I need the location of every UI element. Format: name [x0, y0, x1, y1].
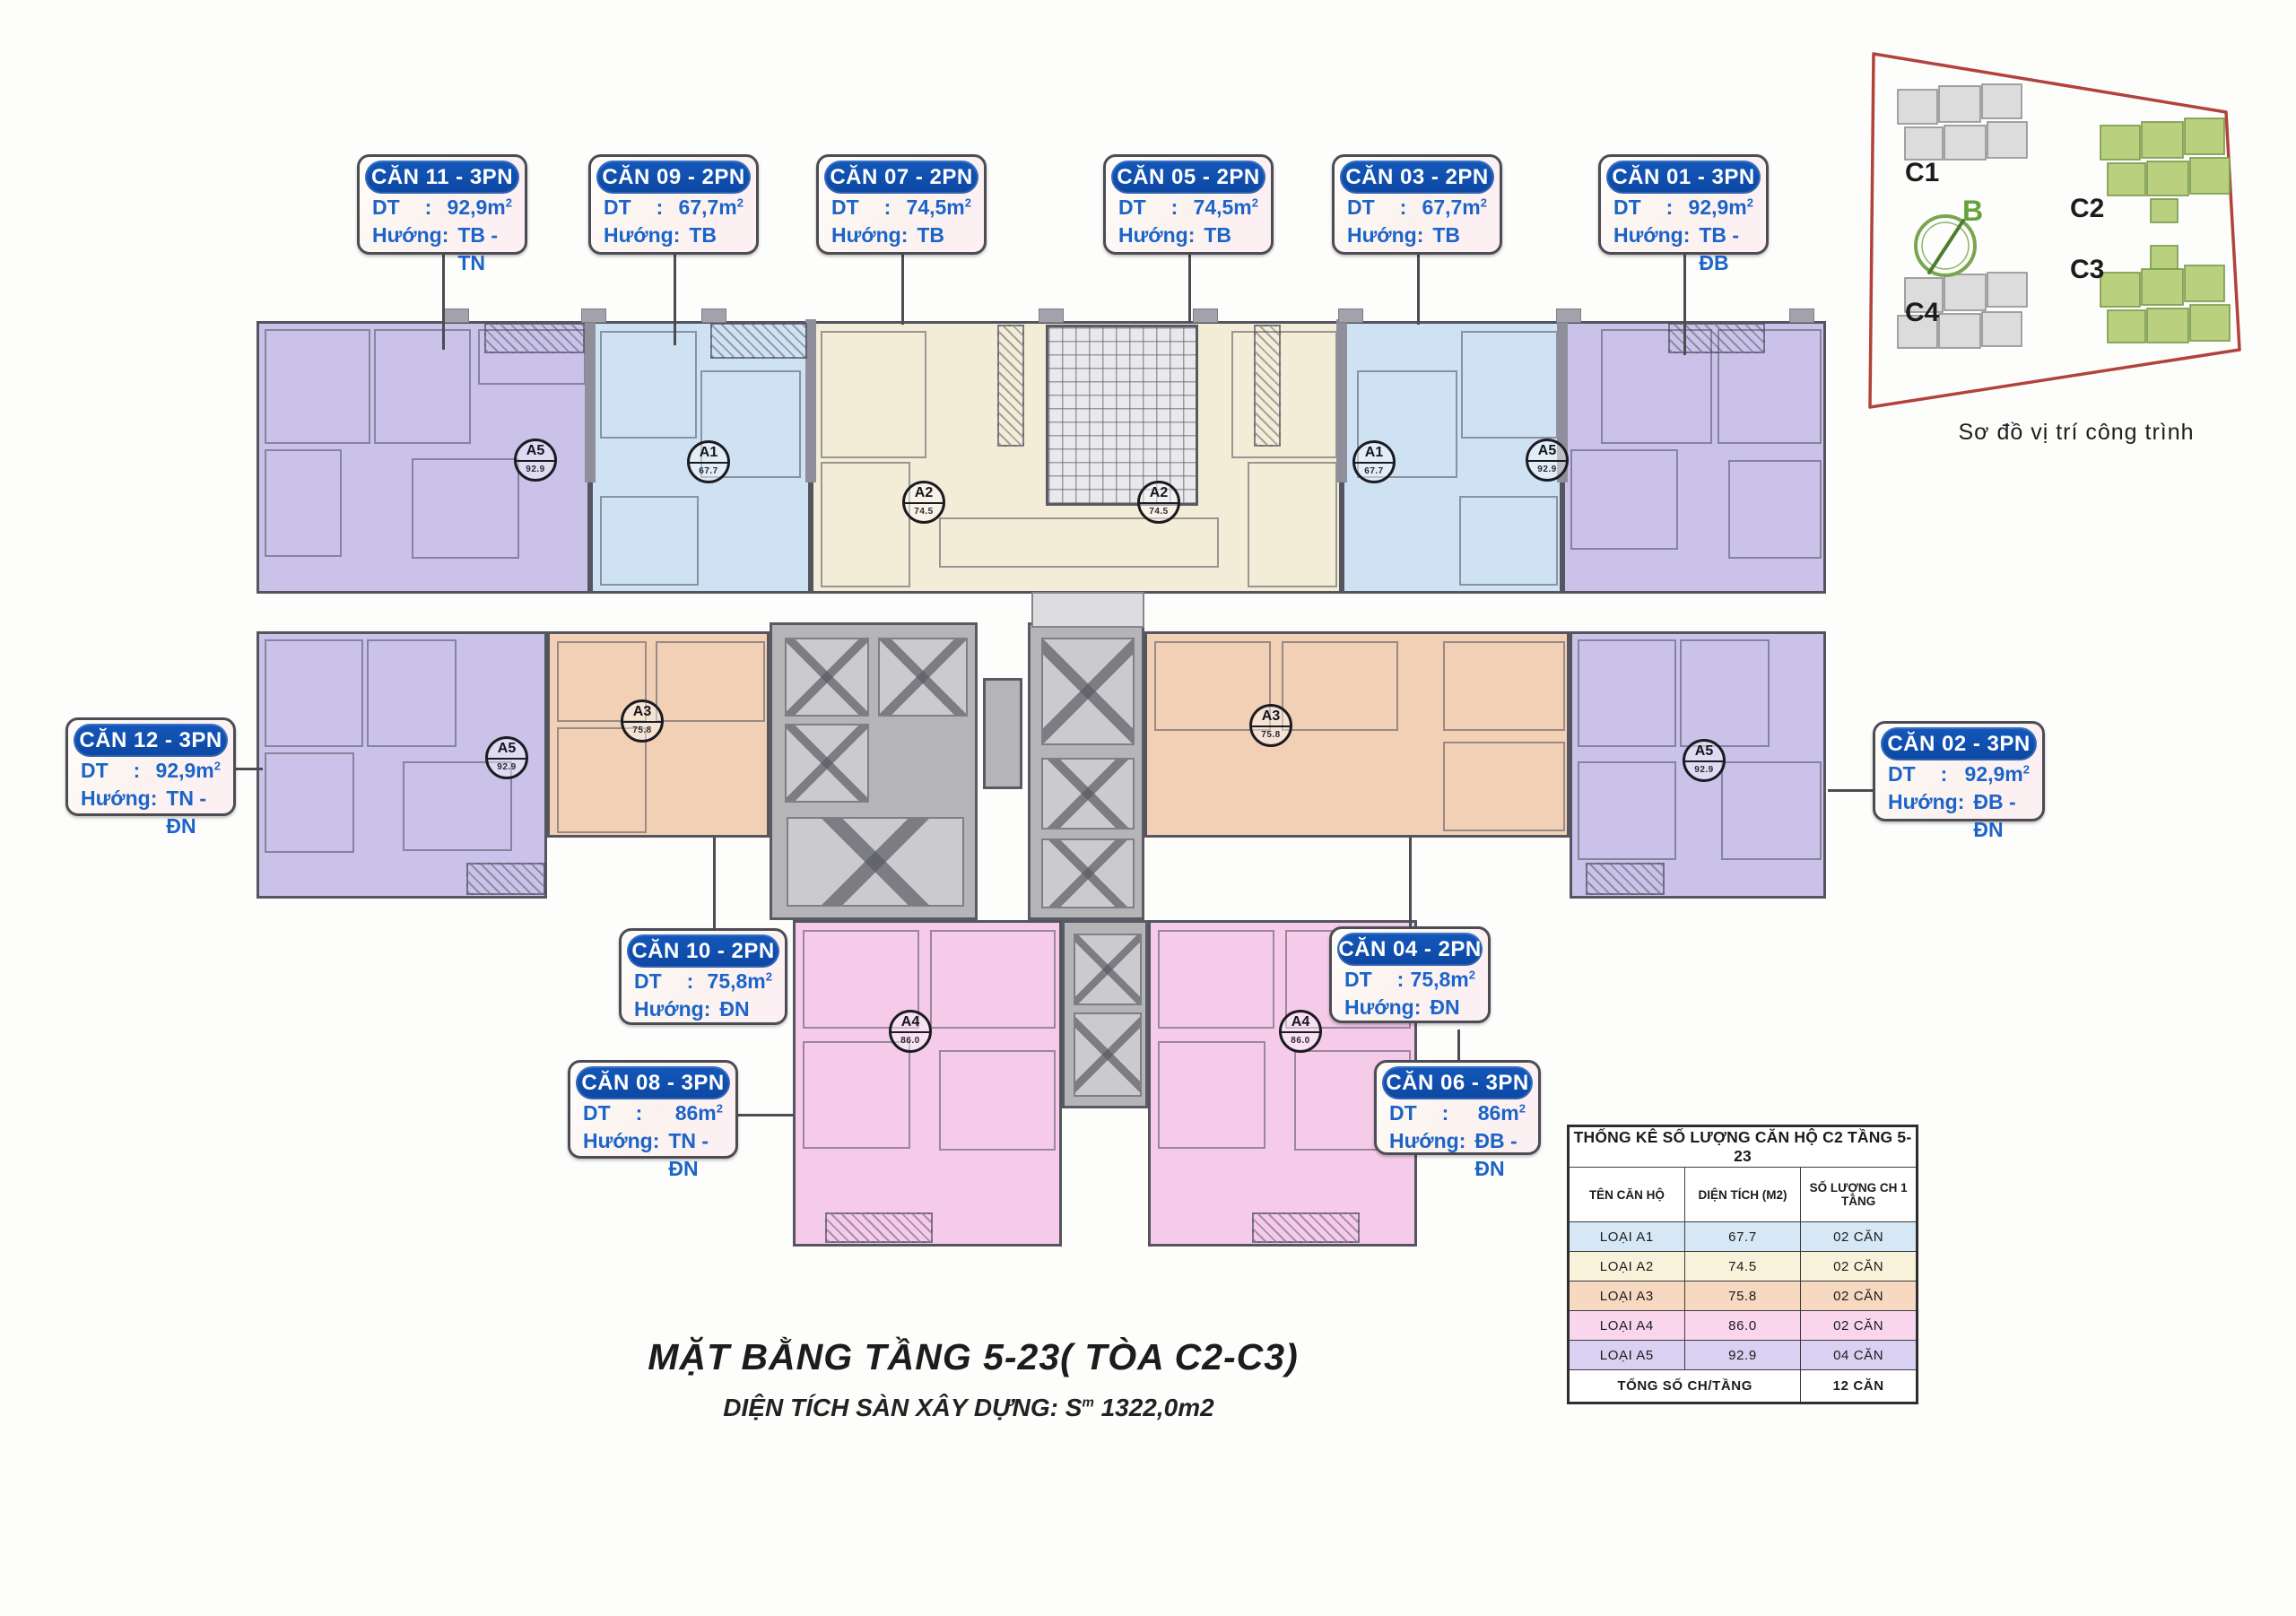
stats-header-name: TÊN CĂN HỘ — [1569, 1168, 1685, 1222]
parapet-tab — [1556, 308, 1581, 323]
unit-type-badge: A274.5 — [1137, 481, 1180, 524]
area-colon: : — [1442, 1099, 1449, 1127]
area-value: 86m2 — [675, 1099, 723, 1127]
unit-label-title: CĂN 07 - 2PN — [824, 161, 978, 194]
core-elevator-right — [1028, 622, 1144, 920]
unit-type-area: 75.8 — [1252, 727, 1290, 743]
stats-area: 75.8 — [1684, 1282, 1801, 1311]
site-building-wing — [1944, 274, 1986, 310]
unit-label-direction-row: Hướng:ĐB - ĐN — [1382, 1127, 1533, 1183]
unit-label-area-row: DT:86m2 — [1382, 1099, 1533, 1127]
stats-total-label: TỔNG SỐ CH/TẦNG — [1569, 1370, 1801, 1403]
area-label: DT — [372, 194, 400, 222]
area-colon: : — [1171, 194, 1178, 222]
area-label: DT — [1389, 1099, 1417, 1127]
room-outline — [1721, 761, 1822, 860]
site-location-diagram: C1C2C3C4B — [1858, 38, 2271, 468]
direction-label: Hướng: — [1613, 222, 1690, 249]
unit-type-badge: A167.7 — [1352, 440, 1396, 483]
stats-title: THỐNG KÊ SỐ LƯỢNG CĂN HỘ C2 TẦNG 5-23 — [1569, 1126, 1918, 1168]
balcony-hatch — [825, 1212, 933, 1243]
area-colon: : — [1400, 194, 1407, 222]
room-outline — [1231, 331, 1337, 458]
stats-type: LOẠI A2 — [1569, 1252, 1685, 1282]
unit-type-badge: A592.9 — [1683, 739, 1726, 782]
area-value: 74,5m2 — [907, 194, 971, 222]
direction-label: Hướng: — [634, 995, 710, 1023]
balcony-hatch — [466, 863, 545, 895]
site-building-label: C4 — [1905, 298, 1940, 327]
room-outline — [1728, 460, 1822, 559]
label-connector — [236, 768, 263, 770]
area-colon: : — [1666, 194, 1674, 222]
area-value: 75,8m2 — [1411, 966, 1475, 994]
area-label: DT — [1344, 966, 1372, 994]
site-building-C4: C4 — [1898, 273, 2027, 348]
room-outline — [1443, 641, 1565, 731]
direction-value: TB - ĐB — [1699, 222, 1753, 277]
unit-label-can-03: CĂN 03 - 2PNDT:67,7m2Hướng:TB — [1332, 154, 1502, 255]
direction-value: TN - ĐN — [668, 1127, 723, 1183]
parapet-tab — [1193, 308, 1218, 323]
direction-value: TB — [1432, 222, 1460, 249]
label-connector — [674, 255, 676, 345]
site-building-wing — [1987, 122, 2027, 158]
site-building-wing — [2151, 246, 2178, 269]
stats-type: LOẠI A1 — [1569, 1222, 1685, 1252]
room-outline — [600, 496, 699, 586]
area-label: DT — [604, 194, 631, 222]
site-building-C2: C2 — [2070, 118, 2230, 223]
room-outline — [939, 1050, 1056, 1151]
unit-label-title: CĂN 06 - 3PN — [1382, 1066, 1533, 1099]
direction-value: TB — [917, 222, 944, 249]
room-outline — [803, 1041, 910, 1149]
label-connector — [1828, 789, 1873, 792]
direction-value: ĐN — [1430, 994, 1459, 1021]
unit-type-badge: A592.9 — [514, 439, 557, 482]
site-building-label: C2 — [2070, 194, 2104, 223]
unit-label-title: CĂN 12 - 3PN — [74, 724, 228, 757]
elevator-cell — [1041, 758, 1135, 830]
direction-label: Hướng: — [831, 222, 908, 249]
stats-count: 04 CĂN — [1801, 1341, 1918, 1370]
room-outline — [265, 449, 342, 557]
site-building-wing — [2190, 158, 2230, 194]
label-connector — [713, 838, 716, 928]
unit-label-area-row: DT:67,7m2 — [596, 194, 751, 222]
unit-label-title: CĂN 10 - 2PN — [627, 934, 779, 968]
site-building-wing — [1982, 84, 2022, 118]
unit-label-can-07: CĂN 07 - 2PNDT:74,5m2Hướng:TB — [816, 154, 987, 255]
unit-type-code: A2 — [1140, 483, 1178, 504]
core-center-bottom — [1062, 920, 1148, 1108]
direction-value: TB — [1204, 222, 1231, 249]
unit-type-code: A5 — [1528, 441, 1566, 462]
unit-label-area-row: DT:92,9m2 — [1881, 760, 2037, 788]
unit-label-can-09: CĂN 09 - 2PNDT:67,7m2Hướng:TB — [588, 154, 759, 255]
parapet-tab — [444, 308, 469, 323]
stats-type: LOẠI A5 — [1569, 1341, 1685, 1370]
area-colon: : — [425, 194, 432, 222]
unit-label-direction-row: Hướng:TN - ĐN — [74, 785, 228, 840]
room-outline — [939, 517, 1219, 568]
unit-type-badge: A486.0 — [889, 1010, 932, 1053]
area-colon: : — [1397, 966, 1405, 994]
unit-label-title: CĂN 02 - 3PN — [1881, 727, 2037, 760]
unit-label-can-12: CĂN 12 - 3PNDT:92,9m2Hướng:TN - ĐN — [65, 717, 236, 816]
unit-label-title: CĂN 03 - 2PN — [1340, 161, 1494, 194]
room-outline — [1443, 742, 1565, 831]
room-outline — [265, 639, 363, 747]
area-value: 92,9m2 — [1689, 194, 1753, 222]
unit-type-code: A2 — [905, 483, 943, 504]
site-building-label: C3 — [2070, 255, 2104, 284]
subtitle-sub: m — [1082, 1395, 1093, 1411]
unit-label-area-row: DT:75,8m2 — [627, 968, 779, 995]
unit-block-unit-can08 — [793, 920, 1062, 1247]
room-outline — [821, 331, 926, 458]
wing-connector-lobby — [1031, 592, 1144, 628]
stats-area: 67.7 — [1684, 1222, 1801, 1252]
unit-type-area: 67.7 — [690, 464, 727, 479]
room-outline — [265, 329, 370, 444]
unit-label-title: CĂN 08 - 3PN — [576, 1066, 730, 1099]
parapet-tab — [1789, 308, 1814, 323]
room-outline — [1459, 496, 1558, 586]
unit-type-area: 86.0 — [1282, 1033, 1319, 1048]
direction-label: Hướng: — [1389, 1127, 1465, 1155]
unit-type-code: A4 — [891, 1012, 929, 1033]
site-building-wing — [2108, 310, 2145, 343]
area-label: DT — [81, 757, 109, 785]
site-building-wing — [2100, 273, 2140, 307]
unit-label-area-row: DT:92,9m2 — [1606, 194, 1761, 222]
unit-type-code: A5 — [488, 739, 526, 760]
area-colon: : — [657, 194, 664, 222]
unit-label-area-row: DT:92,9m2 — [74, 757, 228, 785]
area-label: DT — [634, 968, 662, 995]
floorplan-sheet: A592.9A167.7A274.5A274.5A167.7A592.9A592… — [0, 0, 2296, 1616]
unit-type-badge: A592.9 — [1526, 439, 1569, 482]
area-value: 75,8m2 — [708, 968, 772, 995]
stats-area: 74.5 — [1684, 1252, 1801, 1282]
site-building-wing — [1944, 126, 1986, 160]
area-colon: : — [636, 1099, 643, 1127]
site-building-wing — [2151, 199, 2178, 222]
unit-type-code: A1 — [690, 443, 727, 464]
elevator-cell — [1041, 838, 1135, 908]
core-elevator-left — [770, 622, 978, 920]
unit-label-can-10: CĂN 10 - 2PNDT:75,8m2Hướng:ĐN — [619, 928, 787, 1025]
unit-type-code: A3 — [623, 702, 661, 723]
site-building-wing — [2142, 269, 2183, 305]
site-building-wing — [2147, 161, 2188, 195]
stats-type: LOẠI A3 — [1569, 1282, 1685, 1311]
apartment-stats-table: THỐNG KÊ SỐ LƯỢNG CĂN HỘ C2 TẦNG 5-23TÊN… — [1567, 1125, 1918, 1404]
unit-type-code: A5 — [517, 441, 554, 462]
stats-table-grid: THỐNG KÊ SỐ LƯỢNG CĂN HỘ C2 TẦNG 5-23TÊN… — [1567, 1125, 1918, 1404]
parapet-tab — [1039, 308, 1064, 323]
area-label: DT — [583, 1099, 611, 1127]
site-building-wing — [1898, 90, 1937, 124]
unit-type-badge: A167.7 — [687, 440, 730, 483]
unit-label-direction-row: Hướng:ĐN — [627, 995, 779, 1023]
stats-count: 02 CĂN — [1801, 1282, 1918, 1311]
plan-title: MẶT BẰNG TẦNG 5-23( TÒA C2-C3) — [592, 1336, 1354, 1378]
stats-row: LOẠI A375.802 CĂN — [1569, 1282, 1918, 1311]
stats-type: LOẠI A4 — [1569, 1311, 1685, 1341]
site-building-wing — [2100, 126, 2140, 160]
site-building-wing — [2185, 265, 2224, 301]
unit-label-direction-row: Hướng:TB — [824, 222, 978, 249]
unit-label-title: CĂN 11 - 3PN — [365, 161, 519, 194]
unit-label-direction-row: Hướng:TB — [596, 222, 751, 249]
compass-north-label: B — [1962, 195, 1983, 227]
label-connector — [1409, 838, 1412, 926]
direction-value: ĐB - ĐN — [1973, 788, 2030, 844]
area-colon: : — [884, 194, 891, 222]
direction-label: Hướng: — [372, 222, 448, 249]
stats-row: LOẠI A274.502 CĂN — [1569, 1252, 1918, 1282]
stats-header-count: SỐ LƯỢNG CH 1 TẦNG — [1801, 1168, 1918, 1222]
room-outline — [1158, 1041, 1265, 1149]
core-center-top — [1046, 325, 1198, 506]
direction-label: Hướng: — [583, 1127, 659, 1155]
unit-label-area-row: DT:74,5m2 — [824, 194, 978, 222]
room-outline — [656, 641, 765, 722]
stats-total-value: 12 CĂN — [1801, 1370, 1918, 1403]
balcony-hatch — [710, 323, 807, 359]
unit-type-area: 86.0 — [891, 1033, 929, 1048]
room-outline — [265, 752, 354, 853]
balcony-hatch — [997, 325, 1024, 447]
area-value: 92,9m2 — [448, 194, 512, 222]
unit-type-code: A5 — [1685, 742, 1723, 762]
site-building-wing — [1982, 312, 2022, 346]
unit-label-can-05: CĂN 05 - 2PNDT:74,5m2Hướng:TB — [1103, 154, 1274, 255]
site-building-C1: C1 — [1898, 84, 2027, 187]
area-colon: : — [1941, 760, 1948, 788]
direction-value: TN - ĐN — [166, 785, 221, 840]
stats-total-row: TỔNG SỐ CH/TẦNG12 CĂN — [1569, 1370, 1918, 1403]
unit-label-title: CĂN 01 - 3PN — [1606, 161, 1761, 194]
label-connector — [1417, 255, 1420, 325]
balcony-hatch — [484, 323, 585, 353]
unit-label-area-row: DT:86m2 — [576, 1099, 730, 1127]
unit-label-can-08: CĂN 08 - 3PNDT:86m2Hướng:TN - ĐN — [568, 1060, 738, 1159]
site-building-C3: C3 — [2070, 246, 2230, 343]
room-outline — [412, 458, 519, 559]
unit-type-area: 67.7 — [1355, 464, 1393, 479]
unit-type-area: 92.9 — [1528, 462, 1566, 477]
room-outline — [600, 331, 697, 439]
elevator-cell — [1041, 638, 1135, 745]
unit-label-direction-row: Hướng:TN - ĐN — [576, 1127, 730, 1183]
area-value: 67,7m2 — [1422, 194, 1487, 222]
area-label: DT — [1118, 194, 1146, 222]
parapet-tab — [581, 308, 606, 323]
area-label: DT — [1888, 760, 1916, 788]
room-outline — [1680, 639, 1770, 747]
balcony-hatch — [1252, 1212, 1360, 1243]
unit-type-area: 74.5 — [1140, 504, 1178, 519]
elevator-cell — [787, 817, 964, 907]
unit-type-badge: A375.8 — [621, 699, 664, 743]
direction-value: TB — [689, 222, 717, 249]
unit-label-can-01: CĂN 01 - 3PNDT:92,9m2Hướng:TB - ĐB — [1598, 154, 1769, 255]
area-label: DT — [1613, 194, 1641, 222]
area-value: 86m2 — [1478, 1099, 1526, 1127]
unit-label-direction-row: Hướng:ĐB - ĐN — [1881, 788, 2037, 844]
room-outline — [1158, 930, 1274, 1029]
unit-label-can-11: CĂN 11 - 3PNDT:92,9m2Hướng:TB - TN — [357, 154, 527, 255]
stats-area: 92.9 — [1684, 1341, 1801, 1370]
room-outline — [1248, 462, 1337, 587]
site-building-wing — [1939, 314, 1980, 348]
unit-block-unit-can04 — [1144, 631, 1570, 838]
unit-label-direction-row: Hướng:TB - TN — [365, 222, 519, 277]
stats-header-row: TÊN CĂN HỘDIỆN TÍCH (M2)SỐ LƯỢNG CH 1 TẦ… — [1569, 1168, 1918, 1222]
room-outline — [374, 329, 471, 444]
room-outline — [1578, 761, 1676, 860]
stats-row: LOẠI A486.002 CĂN — [1569, 1311, 1918, 1341]
site-building-label: C1 — [1905, 158, 1939, 187]
area-label: DT — [1347, 194, 1375, 222]
stats-count: 02 CĂN — [1801, 1222, 1918, 1252]
area-value: 74,5m2 — [1194, 194, 1258, 222]
unit-type-area: 75.8 — [623, 723, 661, 738]
unit-label-direction-row: Hướng:TB — [1111, 222, 1265, 249]
stats-row: LOẠI A167.702 CĂN — [1569, 1222, 1918, 1252]
site-building-wing — [2142, 122, 2183, 158]
elevator-cell — [785, 638, 869, 717]
direction-label: Hướng: — [81, 785, 157, 812]
room-outline — [821, 462, 910, 587]
direction-label: Hướng: — [1347, 222, 1423, 249]
label-connector — [1188, 255, 1191, 323]
label-connector — [738, 1114, 794, 1116]
unit-label-title: CĂN 04 - 2PN — [1337, 933, 1483, 966]
stats-count: 02 CĂN — [1801, 1252, 1918, 1282]
unit-type-badge: A592.9 — [485, 736, 528, 779]
direction-label: Hướng: — [1118, 222, 1195, 249]
elevator-cell — [878, 638, 968, 717]
label-connector — [1457, 1030, 1460, 1060]
site-building-wing — [2190, 305, 2230, 341]
room-outline — [930, 930, 1056, 1029]
unit-type-area: 92.9 — [517, 462, 554, 477]
unit-label-direction-row: Hướng:ĐN — [1337, 994, 1483, 1021]
unit-type-code: A1 — [1355, 443, 1393, 464]
area-value: 67,7m2 — [679, 194, 744, 222]
unit-label-area-row: DT:75,8m2 — [1337, 966, 1483, 994]
unit-label-area-row: DT:74,5m2 — [1111, 194, 1265, 222]
room-outline — [557, 727, 647, 833]
site-map: C1C2C3C4B — [1858, 38, 2271, 468]
area-label: DT — [831, 194, 859, 222]
unit-label-area-row: DT:92,9m2 — [365, 194, 519, 222]
unit-type-code: A4 — [1282, 1012, 1319, 1033]
direction-value: TB - TN — [457, 222, 512, 277]
site-building-wing — [2147, 308, 2188, 343]
area-colon: : — [134, 757, 141, 785]
label-connector — [901, 255, 904, 325]
elevator-cell — [1074, 934, 1142, 1005]
room-outline — [1282, 641, 1398, 731]
area-colon: : — [687, 968, 694, 995]
core-mid-small — [983, 678, 1022, 789]
subtitle-prefix: DIỆN TÍCH SÀN XÂY DỰNG: S — [723, 1394, 1082, 1421]
site-building-wing — [1905, 127, 1943, 160]
site-building-wing — [2108, 163, 2145, 195]
room-outline — [1578, 639, 1676, 747]
direction-label: Hướng: — [1344, 994, 1421, 1021]
site-building-wing — [2185, 118, 2224, 154]
elevator-cell — [1074, 1012, 1142, 1097]
parapet-tab — [701, 308, 726, 323]
direction-value: ĐB - ĐN — [1474, 1127, 1526, 1183]
unit-label-area-row: DT:67,7m2 — [1340, 194, 1494, 222]
subtitle-value: 1322,0m2 — [1101, 1394, 1214, 1421]
direction-label: Hướng: — [604, 222, 680, 249]
plan-subtitle: DIỆN TÍCH SÀN XÂY DỰNG: Sm 1322,0m2 — [610, 1394, 1327, 1422]
unit-label-can-02: CĂN 02 - 3PNDT:92,9m2Hướng:ĐB - ĐN — [1873, 721, 2045, 821]
unit-type-badge: A375.8 — [1249, 704, 1292, 747]
room-outline — [1461, 331, 1558, 439]
unit-label-direction-row: Hướng:TB - ĐB — [1606, 222, 1761, 277]
stats-area: 86.0 — [1684, 1311, 1801, 1341]
room-outline — [367, 639, 457, 747]
elevator-cell — [785, 724, 869, 803]
unit-type-area: 92.9 — [1685, 762, 1723, 778]
direction-label: Hướng: — [1888, 788, 1964, 816]
site-building-wing — [1987, 273, 2027, 307]
unit-label-title: CĂN 05 - 2PN — [1111, 161, 1265, 194]
balcony-hatch — [1586, 863, 1665, 895]
stats-count: 02 CĂN — [1801, 1311, 1918, 1341]
unit-type-code: A3 — [1252, 707, 1290, 727]
unit-type-area: 74.5 — [905, 504, 943, 519]
stats-header-area: DIỆN TÍCH (M2) — [1684, 1168, 1801, 1222]
direction-value: ĐN — [719, 995, 749, 1023]
parapet-tab — [1338, 308, 1363, 323]
unit-type-area: 92.9 — [488, 760, 526, 775]
unit-block-unit-can01 — [1562, 321, 1826, 594]
area-value: 92,9m2 — [156, 757, 221, 785]
unit-type-badge: A486.0 — [1279, 1010, 1322, 1053]
unit-type-badge: A274.5 — [902, 481, 945, 524]
room-outline — [1570, 449, 1678, 550]
site-building-wing — [1939, 86, 1980, 122]
area-value: 92,9m2 — [1965, 760, 2030, 788]
stats-row: LOẠI A592.904 CĂN — [1569, 1341, 1918, 1370]
unit-label-can-06: CĂN 06 - 3PNDT:86m2Hướng:ĐB - ĐN — [1374, 1060, 1541, 1155]
wall-pier — [585, 319, 596, 482]
unit-label-can-04: CĂN 04 - 2PNDT:75,8m2Hướng:ĐN — [1329, 926, 1491, 1023]
unit-label-title: CĂN 09 - 2PN — [596, 161, 751, 194]
unit-label-direction-row: Hướng:TB — [1340, 222, 1494, 249]
wall-pier — [1336, 319, 1347, 482]
balcony-hatch — [1254, 325, 1281, 447]
